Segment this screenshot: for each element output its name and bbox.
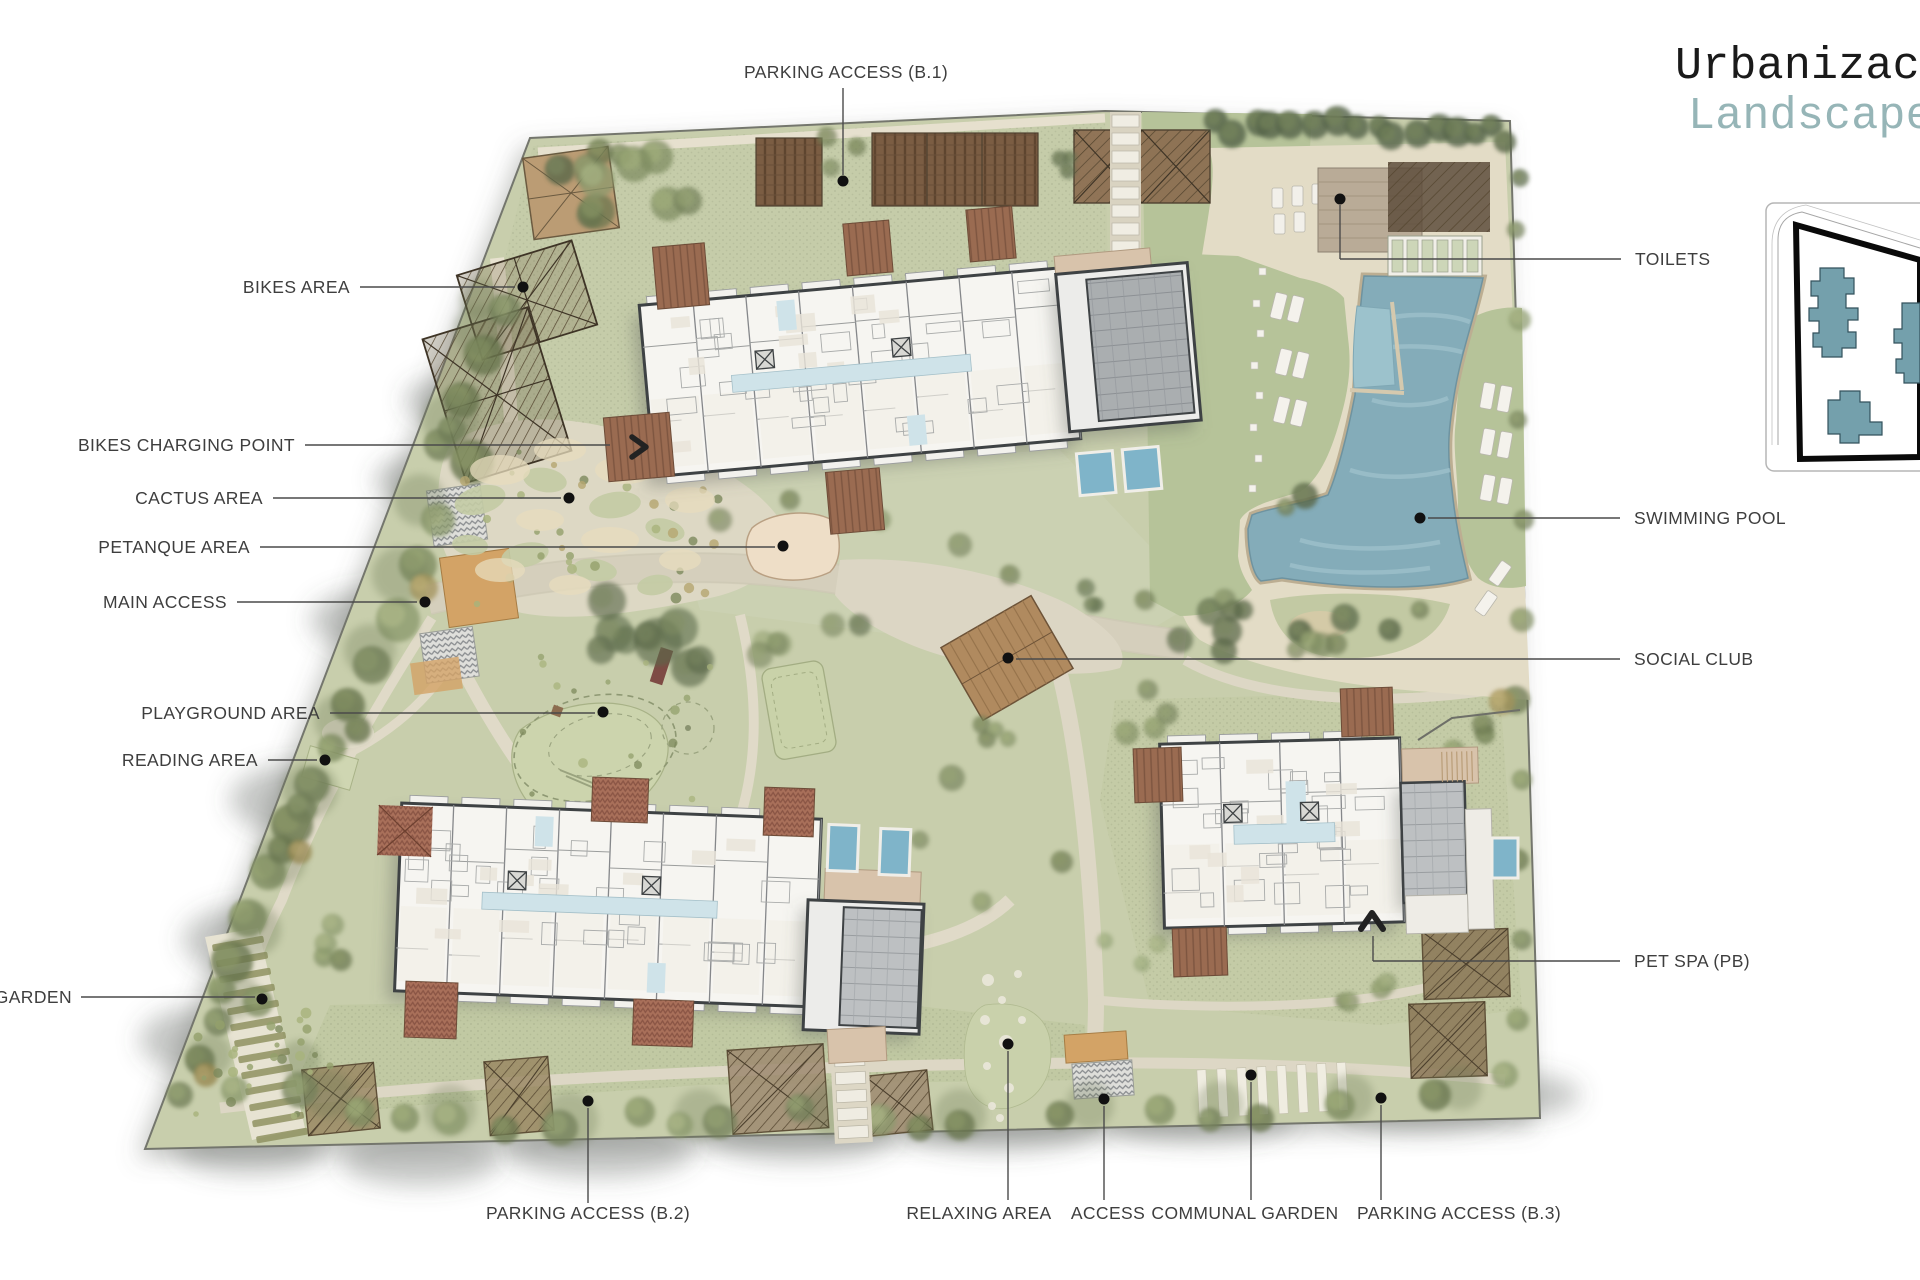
svg-text:BIKES CHARGING POINT: BIKES CHARGING POINT bbox=[78, 435, 295, 455]
svg-text:PETANQUE AREA: PETANQUE AREA bbox=[98, 537, 250, 557]
svg-text:SOCIAL CLUB: SOCIAL CLUB bbox=[1634, 649, 1753, 669]
svg-text:ACCESS: ACCESS bbox=[1071, 1203, 1145, 1223]
svg-text:READING AREA: READING AREA bbox=[122, 750, 258, 770]
svg-text:Landscape: Landscape bbox=[1688, 91, 1920, 142]
svg-text:SWIMMING POOL: SWIMMING POOL bbox=[1634, 508, 1786, 528]
svg-text:CACTUS AREA: CACTUS AREA bbox=[135, 488, 263, 508]
svg-text:COMMUNAL GARDEN: COMMUNAL GARDEN bbox=[1151, 1203, 1338, 1223]
svg-text:TOILETS: TOILETS bbox=[1635, 249, 1710, 269]
svg-text:BIKES AREA: BIKES AREA bbox=[243, 277, 350, 297]
svg-text:L GARDEN: L GARDEN bbox=[0, 987, 72, 1007]
svg-text:PARKING ACCESS (B.2): PARKING ACCESS (B.2) bbox=[486, 1203, 690, 1223]
svg-text:PARKING ACCESS (B.3): PARKING ACCESS (B.3) bbox=[1357, 1203, 1561, 1223]
svg-text:PET SPA (PB): PET SPA (PB) bbox=[1634, 951, 1750, 971]
svg-text:Urbanizaci: Urbanizaci bbox=[1675, 41, 1920, 92]
svg-text:MAIN ACCESS: MAIN ACCESS bbox=[103, 592, 227, 612]
svg-text:PARKING ACCESS (B.1): PARKING ACCESS (B.1) bbox=[744, 62, 948, 82]
svg-text:RELAXING AREA: RELAXING AREA bbox=[906, 1203, 1051, 1223]
svg-text:PLAYGROUND AREA: PLAYGROUND AREA bbox=[141, 703, 320, 723]
